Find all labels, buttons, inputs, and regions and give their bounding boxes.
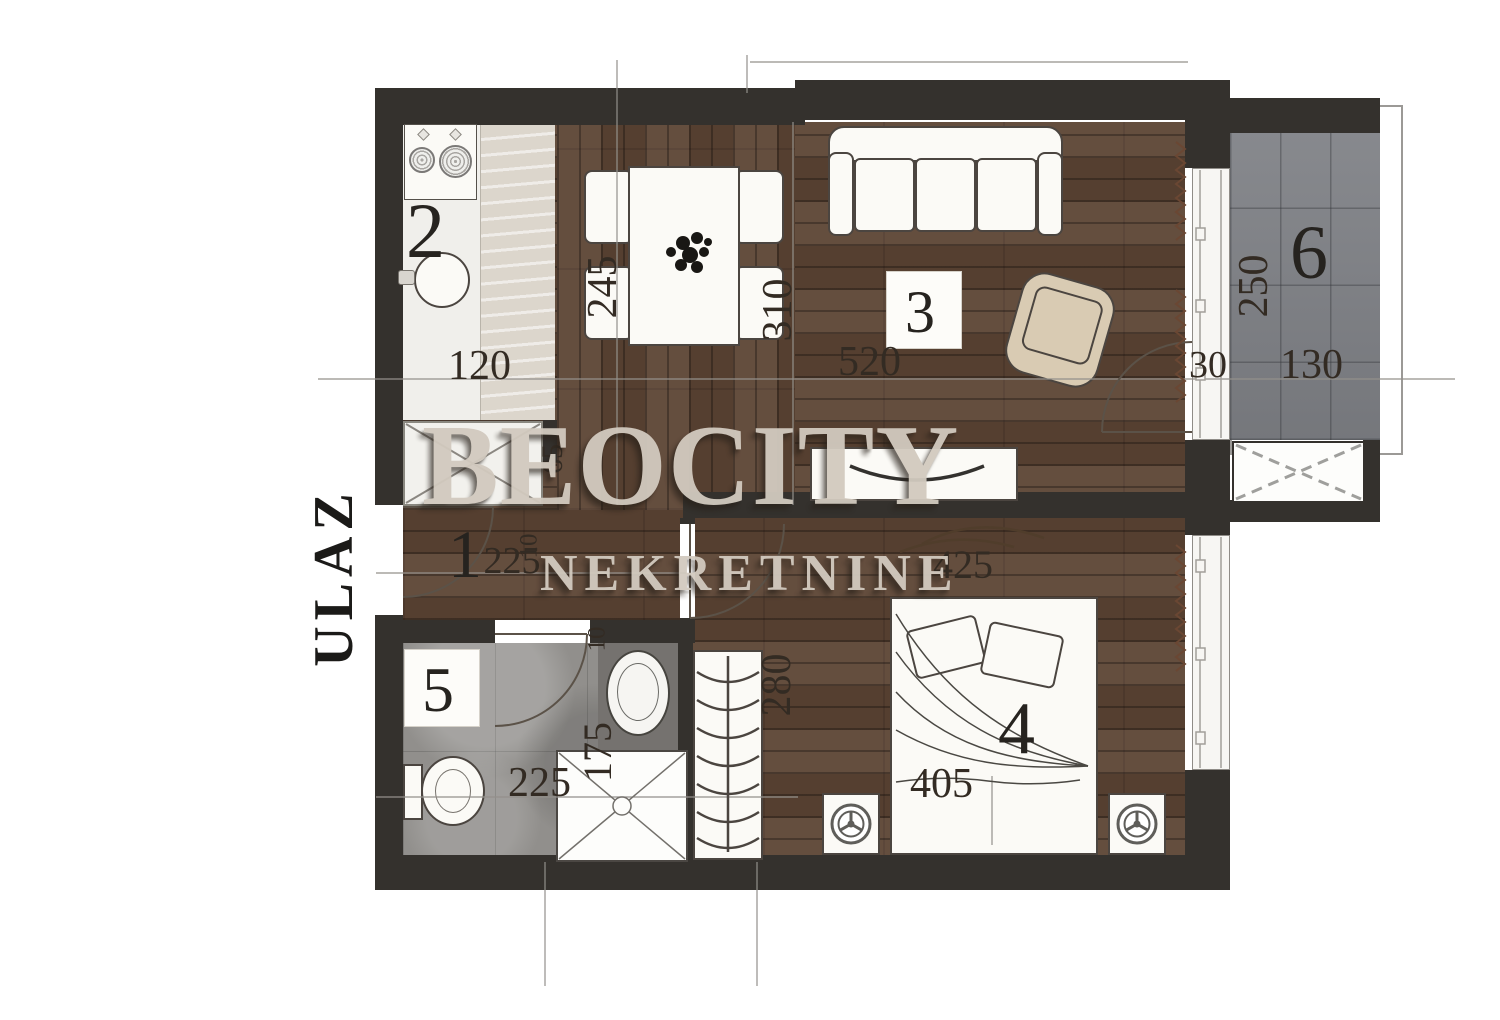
room-number-hallway: 1 [448,520,482,588]
dim-passage-width: 65 [538,444,568,474]
sofa-cushion [915,158,976,232]
toilet-bowl [421,756,485,826]
room-number-living: 3 [905,282,935,342]
wall-right-mid [1185,440,1230,535]
dim-bedroom-width: 425 [933,545,993,585]
wall-bathroom-top-left [375,620,495,643]
dining-table [628,166,740,346]
dim-bed-width: 405 [910,763,973,805]
sofa-armrest [1037,152,1063,236]
sofa-cushion [976,158,1037,232]
terrace-window [1192,168,1230,440]
sofa-armrest [828,152,854,236]
entry-opening [375,505,403,615]
hall-closet [403,421,543,506]
stove-knob [449,128,462,141]
wall-terrace-top [1185,98,1380,133]
dim-dining-depth: 245 [582,256,624,319]
bedroom-door-opening [680,524,695,618]
toilet-tank [403,764,423,820]
entrance-label: ULAZ [306,487,362,667]
room-number-terrace: 6 [1290,215,1328,291]
dim-bathroom-depth: 175 [578,722,618,782]
bathroom-door-opening [495,620,590,643]
wardrobe [693,650,763,860]
room-number-bedroom: 4 [998,692,1035,766]
room-number-kitchen: 2 [406,192,445,270]
dim-bathroom-wall: 10 [585,627,610,652]
dim-hallway-wall: 10 [517,534,542,559]
armchair-cushion [1020,284,1105,367]
stove-burner [409,147,435,173]
sofa-back [828,126,1063,162]
dim-terrace-depth: 250 [1233,255,1275,318]
wall-left-upper [375,88,403,505]
wall-top-right [795,80,1190,120]
tv-stand [810,447,1018,501]
dim-living-width: 520 [838,341,901,383]
room-number-bathroom: 5 [422,658,454,722]
dim-terrace-gap: 30 [1189,346,1227,384]
dim-terrace-width: 130 [1280,344,1343,386]
toilet-bowl-inner [435,769,471,813]
dining-chair [584,170,634,244]
shaft-box [1232,441,1365,503]
wall-bottom [375,855,1230,890]
dining-chair [734,170,784,244]
dim-wardrobe-depth: 280 [756,654,798,717]
stove-burner [439,145,472,178]
stove-knob [417,128,430,141]
dim-dining-length: 310 [757,279,799,342]
bedroom-window [1192,535,1230,770]
wall-left-lower [375,615,403,890]
nightstand [822,793,880,855]
wall-shaft-bottom [1230,500,1380,522]
washbasin-inner [617,663,659,721]
nightstand [1108,793,1166,855]
wall-top-left [375,88,805,125]
wall-shaft-right [1363,440,1380,522]
wall-right-bottom [1185,770,1230,890]
dim-kitchen-width: 120 [448,345,511,387]
dim-bathroom-width: 225 [508,762,571,804]
floor-plan: 1 2 3 4 5 6 120 520 130 30 225 405 425 2… [0,0,1500,1020]
sofa-cushion [854,158,915,232]
